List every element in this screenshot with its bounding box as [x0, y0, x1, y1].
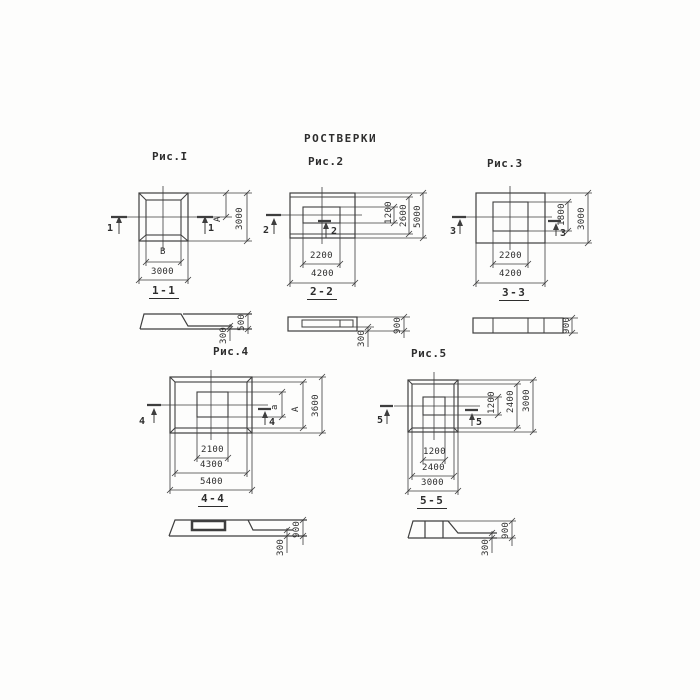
fig4-section-title: 4-4: [198, 493, 228, 507]
fig5-dim-vert-mid: 2400: [507, 390, 516, 413]
fig2-dim-vert-inner: 1200: [385, 201, 394, 224]
fig4-dim-horiz-inner: 2100: [201, 446, 224, 455]
fig5-cut-number-right: 5: [476, 418, 482, 428]
fig4-section-dim-inner: 300: [277, 539, 286, 556]
fig5-section-dim-outer: 900: [502, 522, 511, 539]
drawing-sheet: РОСТВЕРКИ Рис.I A 3000 В 3000 1 1 1-1 30…: [0, 0, 700, 700]
fig3-dim-horiz-outer: 4200: [499, 270, 522, 279]
fig1-section-dim-outer: 500: [238, 314, 247, 331]
fig1-dim-horiz-inner: В: [160, 248, 166, 257]
fig3-plan: [452, 186, 592, 287]
fig3-dim-vert-inner: 1800: [558, 203, 567, 226]
fig2-section-title: 2-2: [307, 286, 337, 300]
fig2-section-dim-inner: 300: [358, 330, 367, 347]
fig1-cut-number-right: 1: [208, 224, 214, 234]
fig1-section-dim-inner: 300: [220, 327, 229, 344]
fig3-dim-horiz-inner: 2200: [499, 252, 522, 261]
fig5-dim-vert-outer: 3000: [523, 389, 532, 412]
fig1-dim-vert-outer: 3000: [236, 207, 245, 230]
fig5-dim-vert-inner: 1200: [488, 391, 497, 414]
fig2-dim-horiz-outer: 4200: [311, 270, 334, 279]
fig4-dim-horiz-mid: 4300: [200, 461, 223, 470]
fig4-dim-vert-mid: A: [292, 406, 301, 412]
fig4-dim-horiz-outer: 5400: [200, 478, 223, 487]
fig2-dim-vert-mid: 2600: [400, 204, 409, 227]
fig4-dim-vert-inner: а: [271, 404, 280, 410]
fig5-section: [408, 518, 516, 553]
fig1-dim-vert-inner: A: [214, 216, 223, 222]
fig5-dim-horiz-outer: 3000: [421, 479, 444, 488]
fig3-section-dim-outer: 900: [563, 317, 572, 334]
fig2-dim-horiz-inner: 2200: [310, 252, 333, 261]
fig5-dim-horiz-mid: 2400: [422, 464, 445, 473]
fig2-label: Рис.2: [308, 156, 344, 167]
fig4-cut-number-left: 4: [139, 417, 145, 427]
fig5-section-dim-inner: 300: [482, 539, 491, 556]
fig2-cut-number-right: 2: [331, 227, 337, 237]
fig3-cut-number-right: 3: [560, 229, 566, 239]
fig1-label: Рис.I: [152, 151, 188, 162]
fig4-section-dim-outer: 900: [293, 521, 302, 538]
fig1-plan: [111, 186, 252, 284]
fig1-dim-horiz-outer: 3000: [151, 268, 174, 277]
fig2-plan: [266, 187, 427, 287]
fig1-section-title: 1-1: [149, 285, 179, 299]
fig2-dim-vert-outer: 5000: [414, 205, 423, 228]
fig1-cut-number-left: 1: [107, 224, 113, 234]
fig3-cut-number-left: 3: [450, 227, 456, 237]
fig3-section-title: 3-3: [499, 287, 529, 301]
fig2-section-dim-outer: 900: [394, 317, 403, 334]
fig5-label: Рис.5: [411, 348, 447, 359]
fig3-label: Рис.3: [487, 158, 523, 169]
sheet-title: РОСТВЕРКИ: [304, 133, 377, 144]
fig1-section: [140, 311, 252, 341]
drawing-linework: [0, 0, 700, 700]
fig3-dim-vert-outer: 3000: [578, 207, 587, 230]
fig4-label: Рис.4: [213, 346, 249, 357]
fig2-cut-number-left: 2: [263, 226, 269, 236]
fig2-cut-marks: [266, 215, 331, 238]
fig5-dim-horiz-inner: 1200: [423, 448, 446, 457]
fig4-cut-number-right: 4: [269, 418, 275, 428]
fig5-section-title: 5-5: [417, 495, 447, 509]
fig4-section: [169, 517, 307, 553]
fig4-plan: [147, 370, 326, 494]
fig5-cut-marks: [380, 406, 478, 426]
fig4-dim-vert-outer: 3600: [312, 394, 321, 417]
fig5-cut-number-left: 5: [377, 416, 383, 426]
fig2-section: [288, 314, 410, 347]
fig1-cut-marks: [111, 216, 213, 234]
